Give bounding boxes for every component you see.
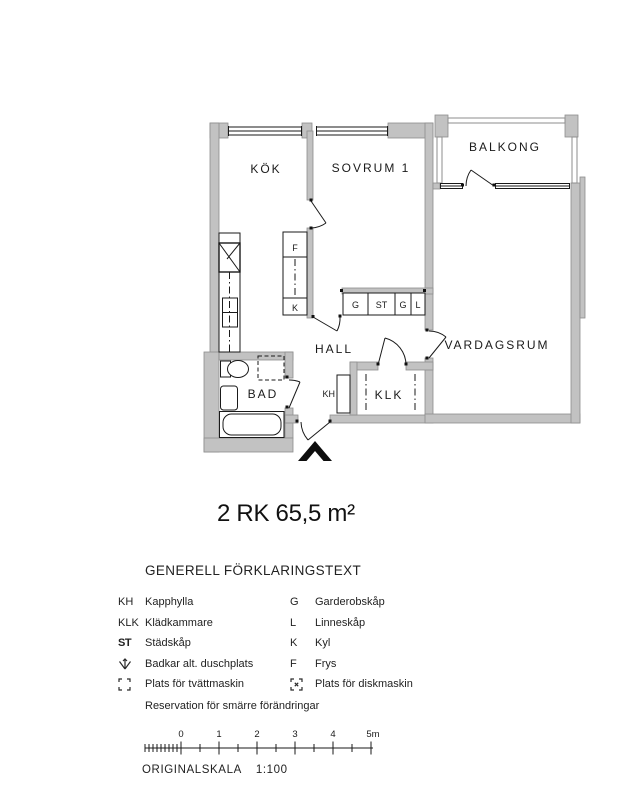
legend-abbr: L bbox=[290, 613, 315, 634]
window-kok bbox=[229, 126, 302, 136]
legend-header: GENERELL FÖRKLARINGSTEXT bbox=[145, 563, 361, 578]
svg-text:5m: 5m bbox=[366, 729, 379, 740]
svg-text:1: 1 bbox=[216, 729, 221, 740]
legend-note: Reservation för smärre förändringar bbox=[145, 700, 319, 712]
door-entry bbox=[301, 422, 330, 440]
washbasin bbox=[221, 386, 238, 410]
svg-text:2: 2 bbox=[254, 729, 259, 740]
cabinet-label-kapphylla: KH bbox=[322, 389, 335, 399]
apartment-size-title: 2 RK 65,5 m² bbox=[217, 500, 355, 528]
scale-ratio: 1:100 bbox=[256, 764, 288, 776]
door-sovrum-hall bbox=[313, 317, 340, 331]
floor-plan-page: F K G ST G L KH bbox=[0, 0, 623, 802]
room-label-sovrum: SOVRUM 1 bbox=[332, 161, 411, 175]
north-arrow-icon bbox=[298, 441, 332, 461]
room-label-hall: HALL bbox=[315, 342, 353, 356]
cabinet-label-garderob-1: G bbox=[352, 300, 359, 310]
scale-tick-labels: 0 1 2 3 4 5m bbox=[178, 729, 379, 740]
toilet bbox=[221, 361, 249, 378]
kitchen-counter bbox=[219, 233, 240, 352]
cabinet-label-kyl: K bbox=[292, 303, 298, 313]
shower-icon bbox=[118, 654, 145, 675]
scale-caption: ORIGINALSKALA1:100 bbox=[142, 764, 288, 776]
legend-abbr: G bbox=[290, 592, 315, 613]
scale-bar: 0 1 2 3 4 5m bbox=[140, 726, 390, 760]
legend-label: Plats för tvättmaskin bbox=[145, 674, 290, 695]
legend: KH Kapphylla G Garderobskåp KLK Klädkamm… bbox=[118, 592, 495, 695]
legend-label: Kapphylla bbox=[145, 592, 290, 613]
legend-abbr: ST bbox=[118, 633, 145, 654]
window-sovrum bbox=[317, 126, 388, 136]
legend-label: Linneskåp bbox=[315, 613, 495, 634]
door-klk bbox=[378, 338, 406, 365]
legend-label: Plats för diskmaskin bbox=[315, 674, 495, 695]
cabinet-label-stadskap: ST bbox=[376, 300, 388, 310]
washing-machine-icon bbox=[118, 674, 145, 695]
room-label-klk: KLK bbox=[375, 388, 404, 402]
svg-text:4: 4 bbox=[330, 729, 335, 740]
stove bbox=[219, 243, 240, 272]
cabinet-label-linneskap: L bbox=[415, 300, 420, 310]
scale-caption-label: ORIGINALSKALA bbox=[142, 764, 242, 776]
room-label-bad: BAD bbox=[248, 387, 279, 401]
legend-abbr: KH bbox=[118, 592, 145, 613]
svg-text:3: 3 bbox=[292, 729, 297, 740]
legend-abbr: K bbox=[290, 633, 315, 654]
legend-abbr: KLK bbox=[118, 613, 145, 634]
door-balkong bbox=[466, 170, 494, 186]
room-label-balkong: BALKONG bbox=[469, 140, 541, 154]
window-vardagsrum-right bbox=[496, 183, 570, 189]
bathtub bbox=[220, 412, 285, 438]
scale-ruler bbox=[145, 742, 373, 755]
window-vardagsrum-left bbox=[441, 183, 463, 189]
legend-label: Klädkammare bbox=[145, 613, 290, 634]
legend-label: Badkar alt. duschplats bbox=[145, 654, 290, 675]
legend-label: Garderobskåp bbox=[315, 592, 495, 613]
legend-label: Kyl bbox=[315, 633, 495, 654]
door-vardagsrum bbox=[429, 331, 446, 358]
dishwasher-icon bbox=[290, 674, 315, 695]
door-bad bbox=[289, 380, 300, 408]
coat-rack bbox=[337, 375, 350, 413]
legend-label: Frys bbox=[315, 654, 495, 675]
legend-label: Städskåp bbox=[145, 633, 290, 654]
cabinet-label-frys: F bbox=[292, 243, 298, 253]
svg-text:0: 0 bbox=[178, 729, 183, 740]
legend-abbr: F bbox=[290, 654, 315, 675]
floor-plan-drawing: F K G ST G L KH bbox=[0, 0, 623, 480]
room-label-kok: KÖK bbox=[250, 162, 281, 176]
cabinet-label-garderob-2: G bbox=[399, 300, 406, 310]
room-label-vardagsrum: VARDAGSRUM bbox=[444, 338, 549, 352]
door-kok-sovrum bbox=[311, 201, 326, 228]
